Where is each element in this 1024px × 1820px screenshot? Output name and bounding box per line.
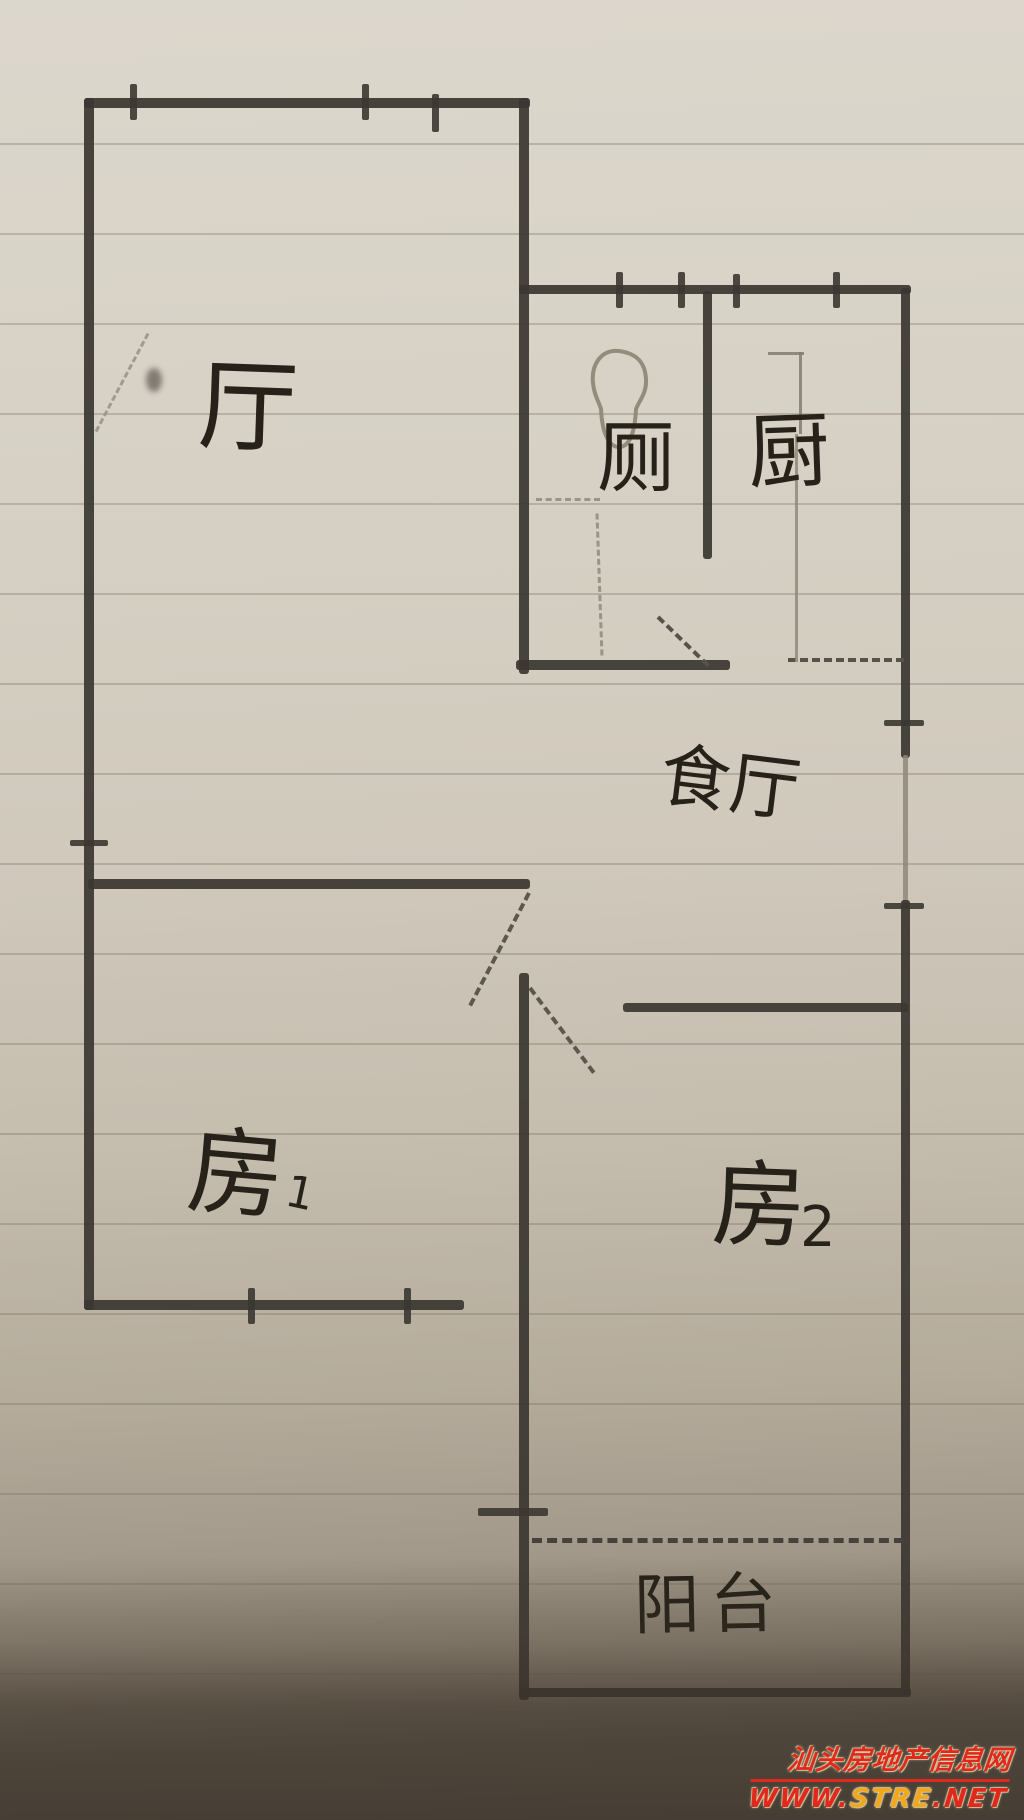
window-tick <box>616 272 623 308</box>
wall-right-lower <box>901 900 910 1695</box>
wall-bedroom2-top <box>623 1003 908 1012</box>
room-label-bedroom2-number: 2 <box>800 1200 836 1256</box>
photo-shadow <box>0 0 1024 1820</box>
watermark: 汕头房地产信息网 WWW.STRE.NET <box>747 1738 1014 1814</box>
notebook-paper: 厅 厕 厨 食厅 房 1 房 2 阳台 汕头房地产信息网 WWW.STRE.NE… <box>0 0 1024 1820</box>
window-tick <box>678 272 685 308</box>
wall-bath-bottom <box>516 660 730 670</box>
window-tick <box>130 84 137 120</box>
window-tick <box>833 272 840 308</box>
door-swing-bedroom2 <box>528 987 595 1074</box>
room-label-living: 厅 <box>196 356 299 459</box>
room-label-kitchen: 厨 <box>747 411 832 496</box>
room-label-bedroom2: 房 <box>710 1158 807 1255</box>
wall-bath-top <box>519 285 911 294</box>
watermark-url-suffix: .NET <box>931 1784 1009 1814</box>
door-mark-bathroom <box>536 498 600 501</box>
wall-mid-vertical-lower <box>519 973 529 1700</box>
window-tick <box>362 84 369 120</box>
window-tick <box>884 720 924 726</box>
window-tick <box>733 274 740 308</box>
watermark-url-highlight: STRE <box>849 1784 934 1814</box>
window-tick <box>248 1288 255 1324</box>
door-swing-entry <box>95 333 150 432</box>
window-tick <box>478 1508 548 1516</box>
window-tick <box>404 1288 411 1324</box>
wall-top-living <box>84 98 530 108</box>
room-label-bedroom1: 房 <box>184 1122 288 1226</box>
door-swing-bathroom <box>596 513 604 655</box>
window-tick <box>432 94 439 132</box>
room-label-toilet: 厕 <box>597 420 675 498</box>
pencil-smudge <box>146 368 162 392</box>
room-label-dining: 食厅 <box>656 740 803 827</box>
room-label-balcony: 阳台 <box>633 1571 786 1640</box>
watermark-url: WWW.STRE.NET <box>747 1784 1009 1814</box>
window-tick <box>70 840 108 846</box>
wall-balcony-divider-dashed <box>532 1538 904 1543</box>
wall-right-faint <box>903 755 908 905</box>
room-label-bedroom1-number: 1 <box>282 1170 319 1219</box>
watermark-site-name: 汕头房地产信息网 <box>750 1738 1014 1782</box>
wall-toilet-kitchen-divider <box>703 291 712 559</box>
window-tick <box>884 903 924 909</box>
wall-kitchen-bottom-dashed <box>788 658 904 662</box>
wall-right-upper <box>901 288 910 758</box>
wall-divider-living-bedroom1 <box>88 879 530 889</box>
wall-balcony-bottom <box>519 1688 911 1697</box>
watermark-url-prefix: WWW. <box>747 1784 852 1814</box>
wall-mid-vertical-upper <box>519 98 529 674</box>
wall-left-outer <box>84 98 94 1310</box>
